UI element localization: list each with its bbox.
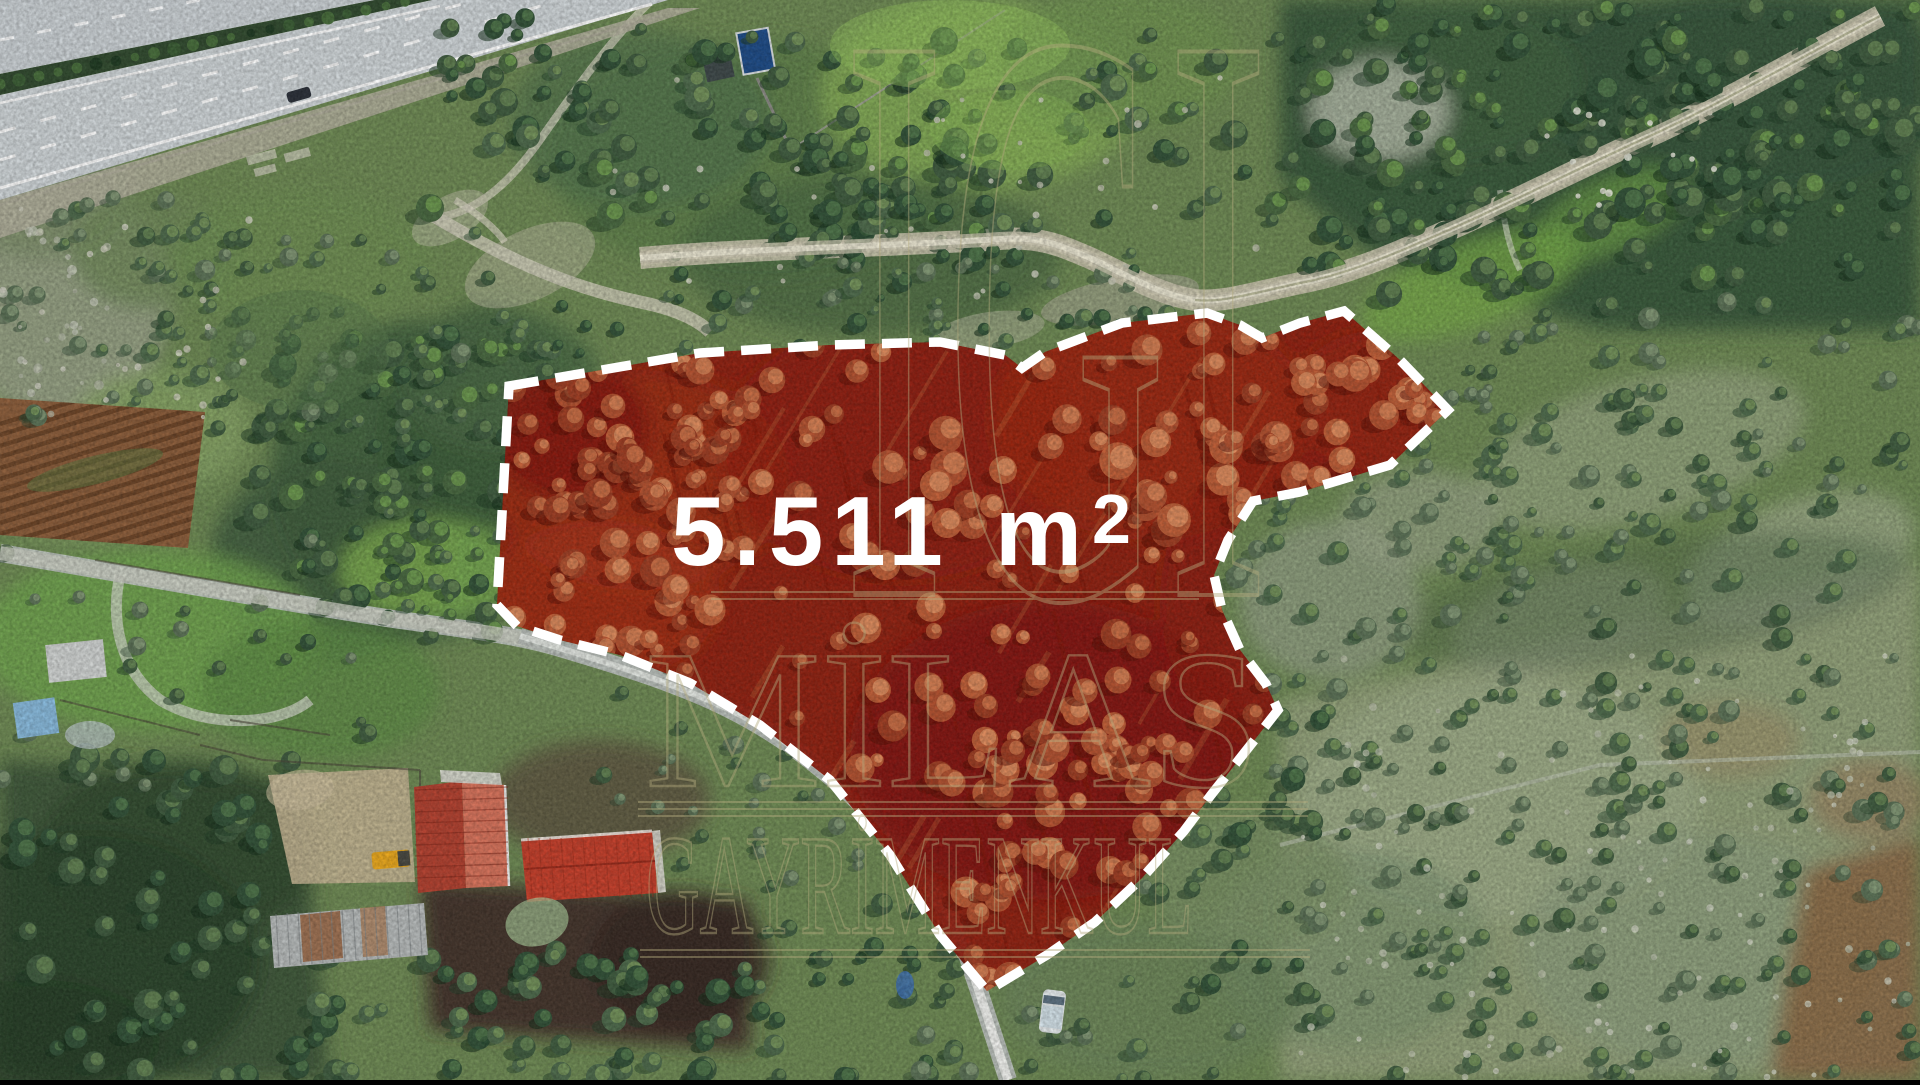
svg-text:GAYRİMENKUL: GAYRİMENKUL: [646, 805, 1193, 964]
svg-text:5.511m2: 5.511m2: [671, 476, 1131, 586]
svg-text:MİLAS: MİLAS: [645, 610, 1261, 829]
